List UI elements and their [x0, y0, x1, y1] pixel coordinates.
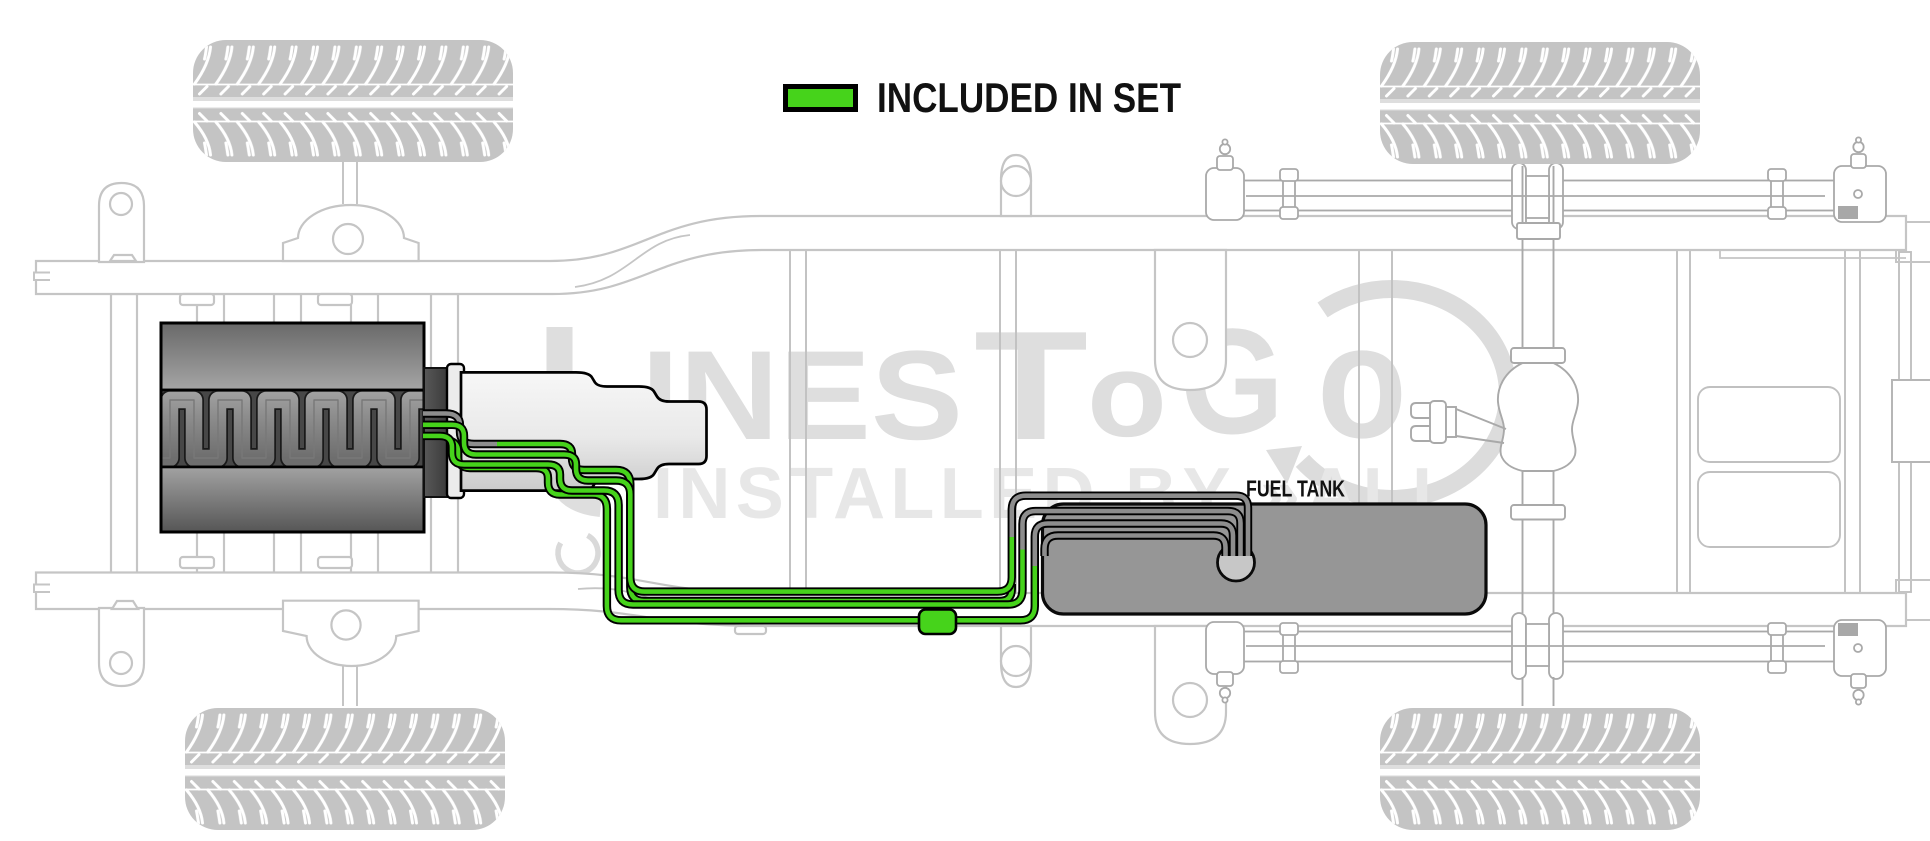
svg-text:INCLUDED IN SET: INCLUDED IN SET: [877, 74, 1181, 121]
svg-text:o: o: [1317, 292, 1407, 472]
svg-text:FUEL TANK: FUEL TANK: [1246, 476, 1345, 502]
svg-text:T: T: [974, 299, 1088, 472]
